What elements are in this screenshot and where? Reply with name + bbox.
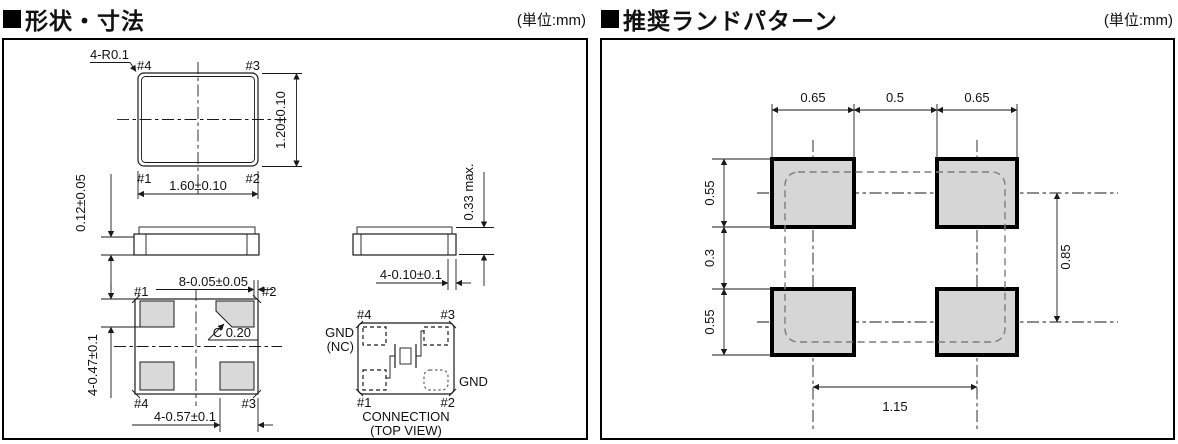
side-view: 0.12±0.05 [73,174,259,289]
pitch-y-dimension: 0.85 [1058,244,1073,269]
chamfer-note: C 0.20 [213,325,251,340]
pin-label: #2 [441,395,455,410]
top-dimensions: 0.65 0.5 0.65 [772,90,1017,159]
gnd-label: GND [459,374,488,389]
connection-caption: CONNECTION [362,409,449,424]
package-body [353,234,456,255]
left-unit-note: (単位:mm) [400,9,586,30]
connection-pad-nc [424,370,448,390]
terminal-pad-chamfered [216,301,254,327]
package-body [134,234,259,255]
vertical-pitch-dimension: 0.85 [1057,193,1073,322]
connection-caption: (TOP VIEW) [370,423,442,438]
pin-label: #1 [134,284,148,299]
row-gap-dimension: 0.3 [702,249,717,267]
right-section-title: 推奨ランドパターン [623,2,838,36]
pad-width-dimension: 0.65 [964,90,989,105]
left-section-title: 形状・寸法 [25,2,145,36]
width-dimension: 1.60±0.10 [169,178,227,193]
pad-inset-dimension: 8-0.05±0.05 [179,274,248,289]
land-pattern-drawing: 0.65 0.5 0.65 0.55 0.3 0.55 0.85 [602,40,1173,438]
pin-label: #4 [134,396,148,411]
package-lid [357,227,452,234]
pin-label: #3 [242,396,256,411]
max-height-dimension: 0.33 max. [461,163,476,220]
terminal-pad [140,362,174,390]
horizontal-pitch-dimension: 1.15 [813,387,977,414]
pin-label: #1 [137,171,151,186]
corner-radius-note: 4-R0.1 [90,47,129,62]
pin-label: #3 [246,58,260,73]
terminal-pad [220,362,254,390]
end-view: 4-0.10±0.1 0.33 max. [353,163,494,290]
shape-dimensions-drawing: 4-R0.1 #4 #3 #1 #2 1.60±0.10 1.20±0.10 [4,40,586,438]
pad-gap-dimension: 0.5 [886,90,904,105]
bottom-view: #1 #2 #4 #3 8-0.05±0.05 C 0.20 4-0. [85,274,282,432]
connection-pad [424,327,448,345]
right-section-heading: 推奨ランドパターン [601,2,838,36]
pad-height-dimension: 0.55 [702,309,717,334]
heading-square-icon [3,10,21,28]
connection-pad [363,327,386,345]
electrode-thickness-dimension: 0.12±0.05 [73,174,88,232]
package-lid [139,227,255,234]
pitch-x-dimension: 1.15 [882,399,907,414]
terminal-pad [140,301,174,327]
land-pad [772,159,854,227]
top-view: 4-R0.1 #4 #3 #1 #2 1.60±0.10 1.20±0.10 [90,47,302,199]
shape-dimensions-panel: 4-R0.1 #4 #3 #1 #2 1.60±0.10 1.20±0.10 [2,38,588,440]
height-dimension: 1.20±0.10 [273,91,288,149]
pin-label: #3 [441,307,455,322]
left-dimensions: 0.55 0.3 0.55 [702,159,772,355]
land-pattern-panel: 0.65 0.5 0.65 0.55 0.3 0.55 0.85 [600,38,1175,440]
datasheet-drawing-page: 形状・寸法 (単位:mm) 推奨ランドパターン (単位:mm) 4-R0.1 [0,0,1178,444]
left-section-heading: 形状・寸法 [3,2,145,36]
pad-width-dimension: 4-0.57±0.1 [154,409,216,424]
gnd-nc-label: GND [325,325,354,340]
pin-label: #4 [137,58,151,73]
heading-square-icon [601,10,619,28]
pad-height-dimension: 0.55 [702,180,717,205]
pad-height-dimension: 4-0.47±0.1 [85,334,100,396]
terminal-dimension: 4-0.10±0.1 [380,267,442,282]
pin-label: #2 [262,284,276,299]
crystal-symbol-icon [386,331,424,378]
connection-outline [358,323,454,394]
right-unit-note: (単位:mm) [987,9,1173,30]
connection-pad [363,370,386,390]
gnd-nc-label: (NC) [327,339,354,354]
pad-width-dimension: 0.65 [800,90,825,105]
pin-label: #1 [357,395,371,410]
pin-label: #4 [357,307,371,322]
land-pad [772,289,854,355]
connection-view: #4 #3 #1 #2 GND (NC) GND CONNECTION (TOP… [325,307,488,438]
